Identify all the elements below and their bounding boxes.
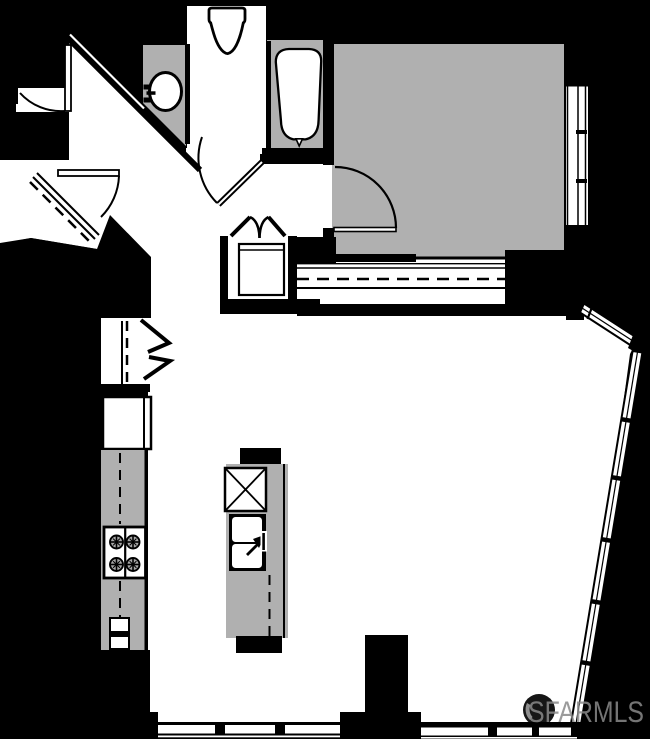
- svg-text:SFARMLS: SFARMLS: [528, 696, 644, 729]
